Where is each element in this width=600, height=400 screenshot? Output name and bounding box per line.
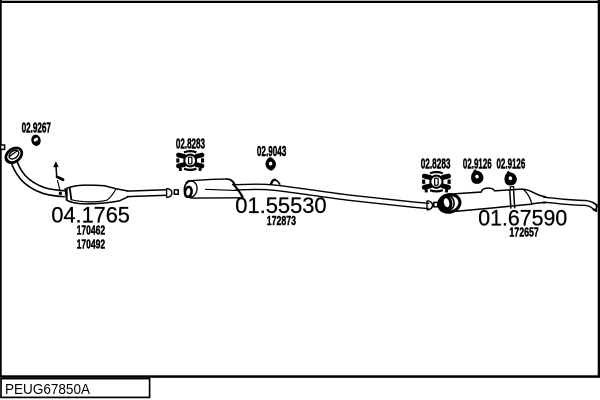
svg-text:02.9267: 02.9267 bbox=[22, 121, 51, 137]
svg-text:172873: 172873 bbox=[267, 213, 296, 228]
svg-text:02.9126: 02.9126 bbox=[497, 157, 526, 173]
svg-text:02.9126: 02.9126 bbox=[463, 157, 492, 173]
svg-text:02.8283: 02.8283 bbox=[421, 157, 451, 173]
svg-text:172657: 172657 bbox=[509, 225, 538, 240]
svg-text:170492: 170492 bbox=[77, 236, 106, 251]
svg-text:170462: 170462 bbox=[77, 223, 106, 238]
svg-text:PEUG67850A: PEUG67850A bbox=[5, 381, 90, 398]
